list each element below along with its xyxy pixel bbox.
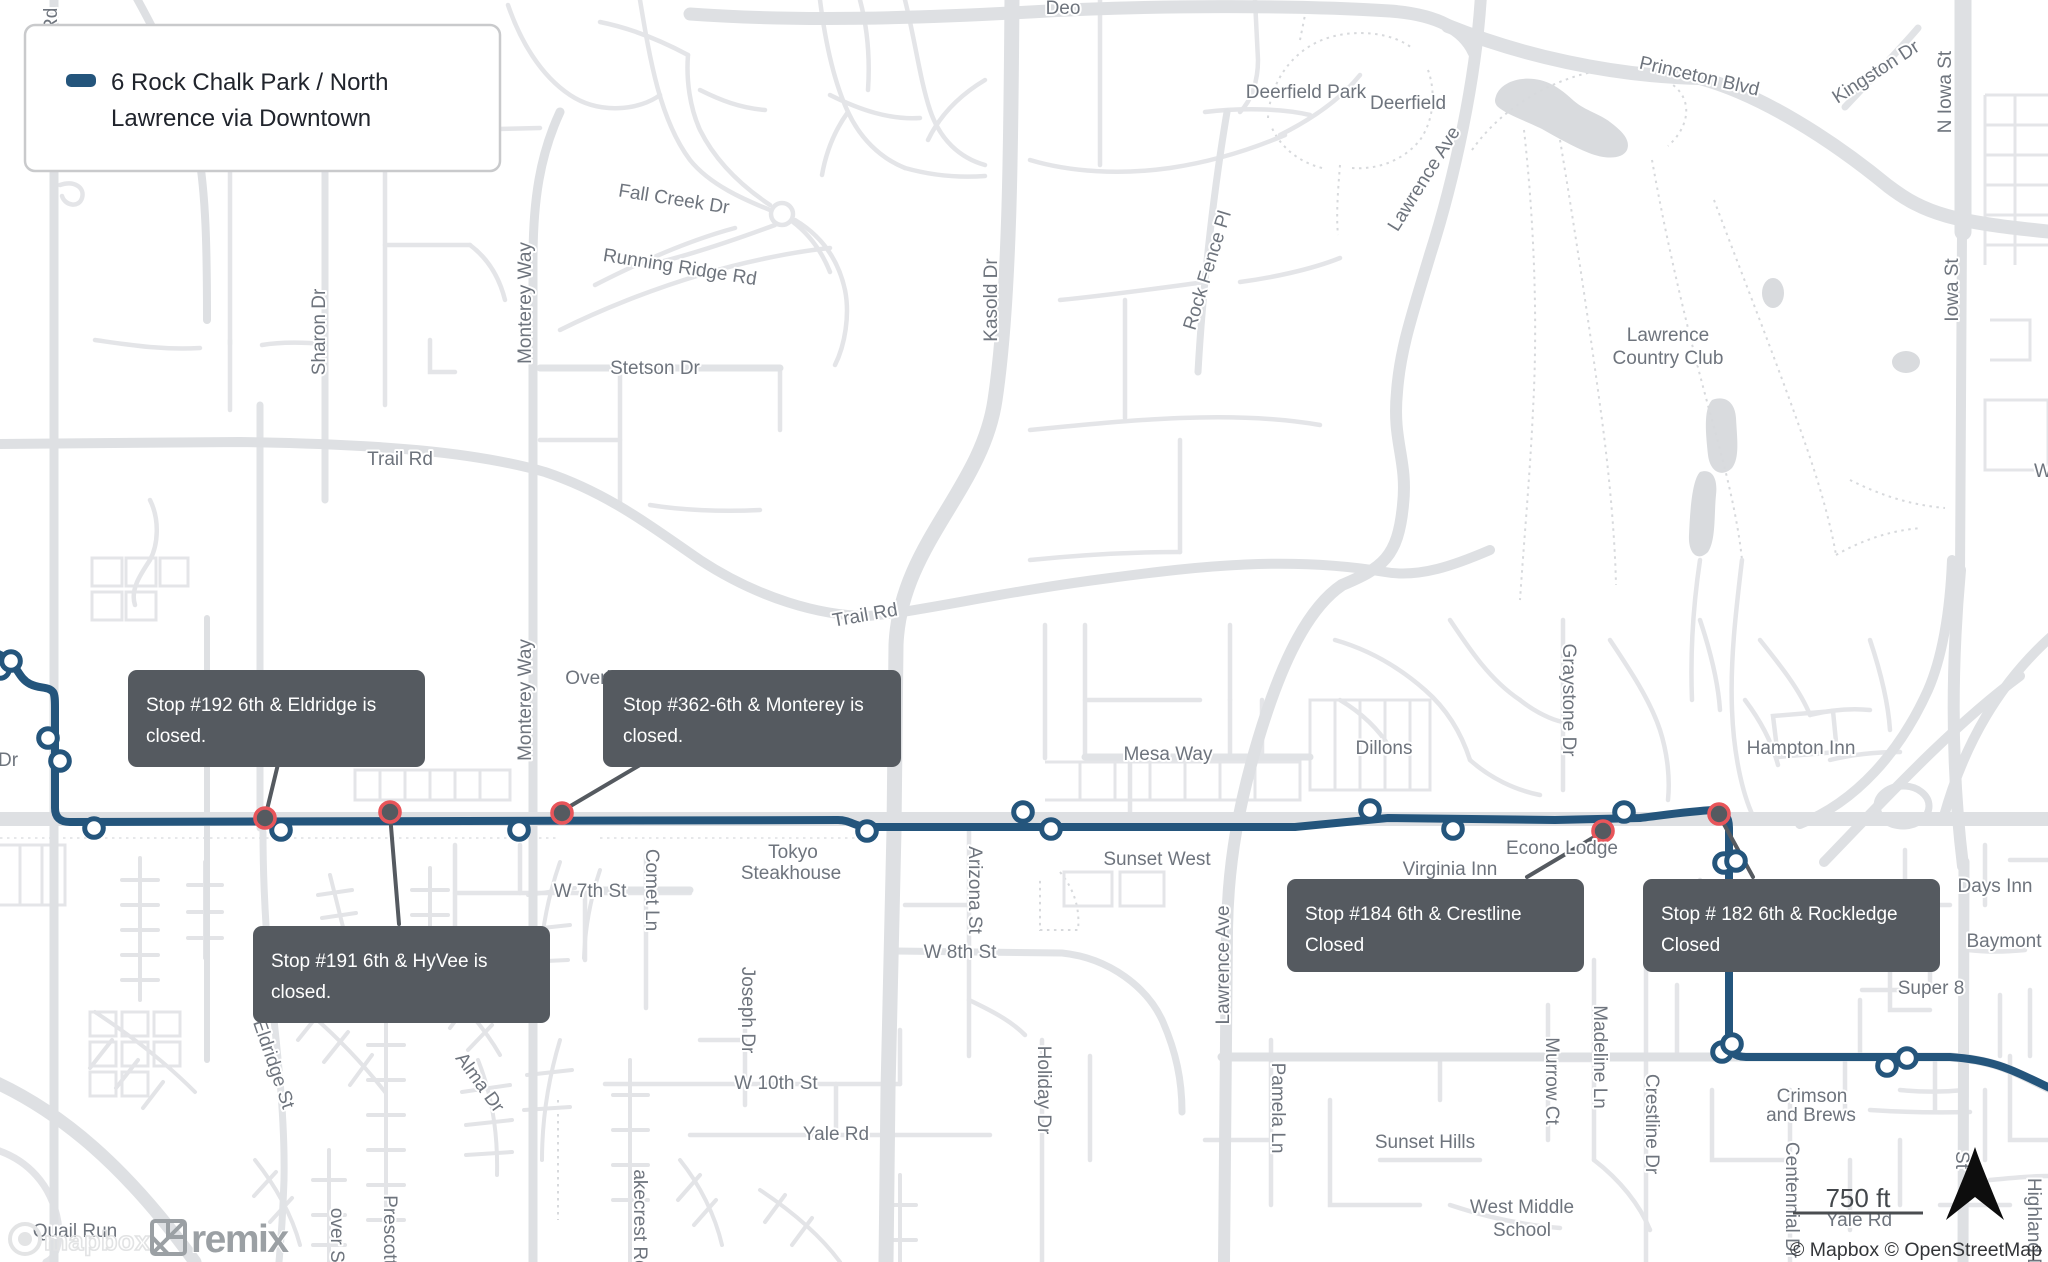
svg-text:Dillons: Dillons bbox=[1355, 738, 1412, 759]
svg-text:Virginia Inn: Virginia Inn bbox=[1403, 859, 1498, 880]
svg-text:Deerfield Park: Deerfield Park bbox=[1246, 82, 1367, 103]
svg-text:Stop # 182 6th & Rockledge: Stop # 182 6th & Rockledge bbox=[1661, 904, 1898, 925]
svg-text:750 ft: 750 ft bbox=[1825, 1183, 1891, 1213]
svg-text:Deerfield: Deerfield bbox=[1370, 93, 1446, 114]
svg-text:Lawrence Ave: Lawrence Ave bbox=[1213, 905, 1234, 1024]
svg-text:Deo: Deo bbox=[1046, 0, 1081, 19]
svg-text:Sunset Hills: Sunset Hills bbox=[1375, 1132, 1475, 1153]
svg-text:Stop #191 6th & HyVee is: Stop #191 6th & HyVee is bbox=[271, 951, 488, 972]
svg-text:Econo Lodge: Econo Lodge bbox=[1506, 838, 1618, 859]
svg-text:and Brews: and Brews bbox=[1766, 1105, 1856, 1126]
svg-text:Iowa St: Iowa St bbox=[1942, 258, 1963, 322]
svg-text:Dr: Dr bbox=[0, 750, 19, 771]
svg-text:School: School bbox=[1493, 1220, 1551, 1241]
svg-text:Stetson Dr: Stetson Dr bbox=[610, 358, 700, 379]
svg-text:Arizona St: Arizona St bbox=[964, 846, 985, 934]
svg-text:Country Club: Country Club bbox=[1613, 348, 1724, 369]
svg-text:W 10th St: W 10th St bbox=[734, 1073, 818, 1094]
svg-text:Madeline Ln: Madeline Ln bbox=[1589, 1005, 1610, 1109]
svg-text:Stop #184 6th & Crestline: Stop #184 6th & Crestline bbox=[1305, 904, 1522, 925]
svg-text:Baymont: Baymont bbox=[1967, 931, 2043, 952]
svg-text:Mesa Way: Mesa Way bbox=[1123, 744, 1213, 765]
svg-text:Prescott: Prescott bbox=[379, 1195, 400, 1262]
svg-text:Lawrence via Downtown: Lawrence via Downtown bbox=[111, 105, 371, 132]
svg-text:Stop #192 6th & Eldridge is: Stop #192 6th & Eldridge is bbox=[146, 695, 376, 716]
svg-text:mapbox: mapbox bbox=[44, 1226, 151, 1256]
svg-text:over St: over St bbox=[326, 1208, 347, 1262]
svg-text:Murrow Ct: Murrow Ct bbox=[1541, 1037, 1562, 1125]
svg-text:Yale Rd: Yale Rd bbox=[803, 1124, 869, 1145]
svg-text:Tokyo: Tokyo bbox=[768, 842, 818, 863]
svg-text:Closed: Closed bbox=[1661, 935, 1720, 956]
svg-text:Monterey Way: Monterey Way bbox=[515, 242, 536, 364]
svg-text:Crimson: Crimson bbox=[1777, 1086, 1848, 1107]
svg-text:Crestline Dr: Crestline Dr bbox=[1641, 1074, 1662, 1175]
svg-text:Days Inn: Days Inn bbox=[1958, 876, 2033, 897]
svg-text:6 Rock Chalk Park / North: 6 Rock Chalk Park / North bbox=[111, 69, 388, 96]
svg-text:Joseph Dr: Joseph Dr bbox=[737, 967, 758, 1054]
svg-text:W: W bbox=[2034, 461, 2048, 482]
svg-text:Holiday Dr: Holiday Dr bbox=[1033, 1046, 1054, 1135]
svg-text:© Mapbox © OpenStreetMap: © Mapbox © OpenStreetMap bbox=[1790, 1239, 2042, 1261]
svg-text:closed.: closed. bbox=[623, 726, 683, 747]
svg-text:Trail Rd: Trail Rd bbox=[367, 449, 433, 470]
svg-text:closed.: closed. bbox=[146, 726, 206, 747]
svg-text:Steakhouse: Steakhouse bbox=[741, 863, 841, 884]
svg-text:Comet Ln: Comet Ln bbox=[641, 849, 662, 931]
svg-text:closed.: closed. bbox=[271, 982, 331, 1003]
svg-text:akecrest Rd: akecrest Rd bbox=[629, 1169, 650, 1262]
svg-text:Super 8: Super 8 bbox=[1898, 978, 1965, 999]
svg-text:W 7th St: W 7th St bbox=[554, 881, 628, 902]
svg-text:Monterey Way: Monterey Way bbox=[515, 639, 536, 761]
svg-text:Lawrence: Lawrence bbox=[1627, 325, 1709, 346]
svg-text:Kasold Dr: Kasold Dr bbox=[981, 258, 1002, 342]
svg-text:Closed: Closed bbox=[1305, 935, 1364, 956]
svg-text:N Iowa St: N Iowa St bbox=[1935, 50, 1956, 133]
svg-text:W 8th St: W 8th St bbox=[924, 942, 998, 963]
svg-text:Stop #362-6th & Monterey is: Stop #362-6th & Monterey is bbox=[623, 695, 864, 716]
svg-text:Sunset West: Sunset West bbox=[1103, 849, 1211, 870]
svg-text:Sharon Dr: Sharon Dr bbox=[309, 288, 330, 375]
svg-text:West Middle: West Middle bbox=[1470, 1197, 1574, 1218]
svg-text:Graystone Dr: Graystone Dr bbox=[1558, 644, 1579, 758]
svg-text:remix: remix bbox=[191, 1218, 289, 1261]
svg-text:Pamela Ln: Pamela Ln bbox=[1267, 1063, 1288, 1154]
svg-text:Hampton Inn: Hampton Inn bbox=[1747, 738, 1856, 759]
